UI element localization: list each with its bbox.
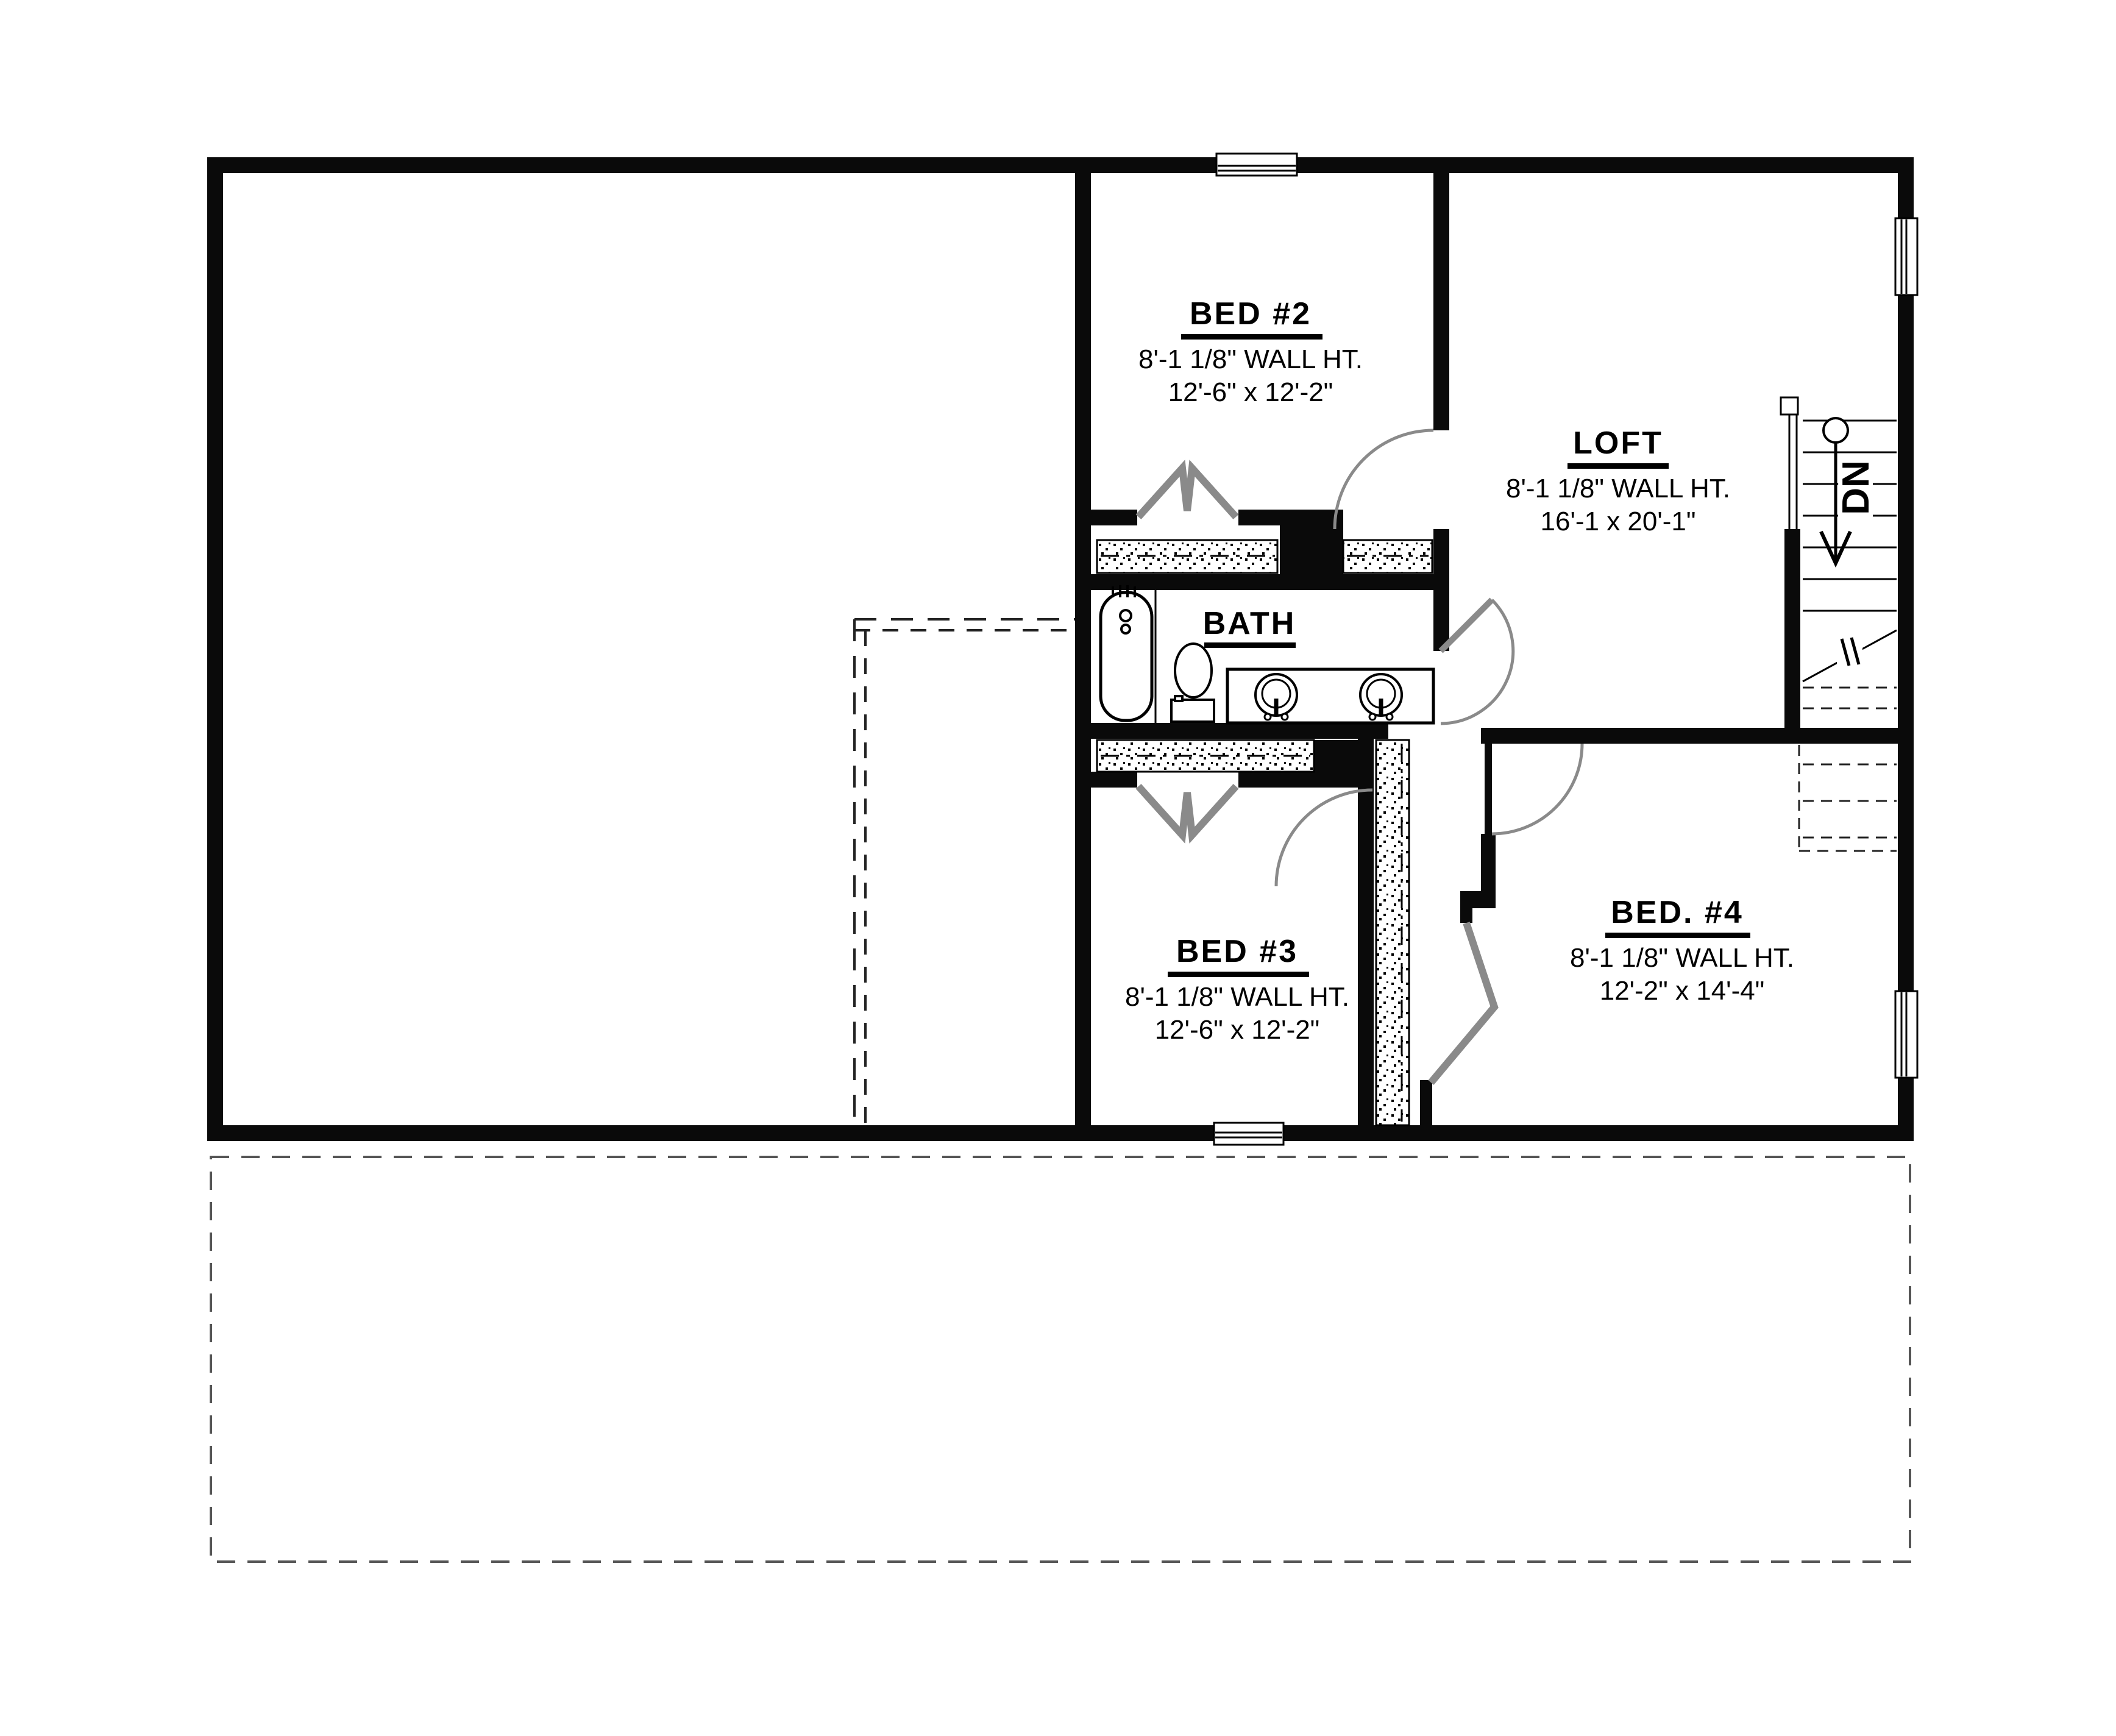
sheet-background xyxy=(0,0,2116,1736)
toilet xyxy=(1171,644,1214,722)
wall-stair-west xyxy=(1784,529,1800,744)
dn-label: DN xyxy=(1835,460,1877,515)
bed2-wall-ht: 8'-1 1/8" WALL HT. xyxy=(1138,344,1363,374)
bed3-wall-ht: 8'-1 1/8" WALL HT. xyxy=(1125,982,1349,1012)
loft-underline xyxy=(1567,463,1669,469)
floor-plan-sheet: DN BED #2 8'-1 1/8" WALL HT. 12'-6" x 12… xyxy=(0,0,2116,1736)
wall-left-room-east xyxy=(1075,172,1091,1126)
loft-wall-ht: 8'-1 1/8" WALL HT. xyxy=(1506,474,1730,503)
loft-name: LOFT xyxy=(1573,425,1663,461)
floor-plan-drawing: DN BED #2 8'-1 1/8" WALL HT. 12'-6" x 12… xyxy=(0,0,2116,1736)
window-right-bed4 xyxy=(1895,991,1917,1078)
wall-bed2-east-upper xyxy=(1433,172,1449,430)
linen-closet-hatch xyxy=(1343,540,1432,573)
bed2-closet-hatch xyxy=(1097,540,1277,573)
bed2-underline xyxy=(1181,334,1322,340)
bed4-wall-ht: 8'-1 1/8" WALL HT. xyxy=(1570,943,1794,973)
bed3-underline xyxy=(1168,972,1309,977)
bed4-closet-hatch xyxy=(1376,740,1409,1125)
wall-bed3-east xyxy=(1358,723,1374,1125)
bed2-size: 12'-6" x 12'-2" xyxy=(1168,377,1333,407)
wall-loft-bed4 xyxy=(1481,728,1899,744)
window-bottom-bed3 xyxy=(1214,1123,1283,1145)
bed4-door-leaf xyxy=(1485,744,1492,834)
bed3-size: 12'-6" x 12'-2" xyxy=(1155,1015,1320,1045)
bed4-name: BED. #4 xyxy=(1611,895,1744,930)
wall-bath-north xyxy=(1075,574,1449,590)
bed2-name: BED #2 xyxy=(1190,296,1312,332)
bath-name: BATH xyxy=(1203,606,1296,641)
bed3-name: BED #3 xyxy=(1176,934,1298,969)
bed3-closet-hatch xyxy=(1097,740,1314,772)
bed4-underline xyxy=(1605,933,1750,938)
bed4-size: 12'-2" x 14'-4" xyxy=(1600,976,1765,1006)
wall-bed2-east-lower xyxy=(1433,529,1449,651)
vanity xyxy=(1227,669,1433,723)
bathtub xyxy=(1101,585,1152,720)
bath-underline xyxy=(1204,642,1296,648)
window-right-loft xyxy=(1895,218,1917,295)
wall-bath-south xyxy=(1075,723,1388,739)
window-top-bed2 xyxy=(1216,154,1297,176)
loft-size: 16'-1 x 20'-1" xyxy=(1541,507,1696,536)
